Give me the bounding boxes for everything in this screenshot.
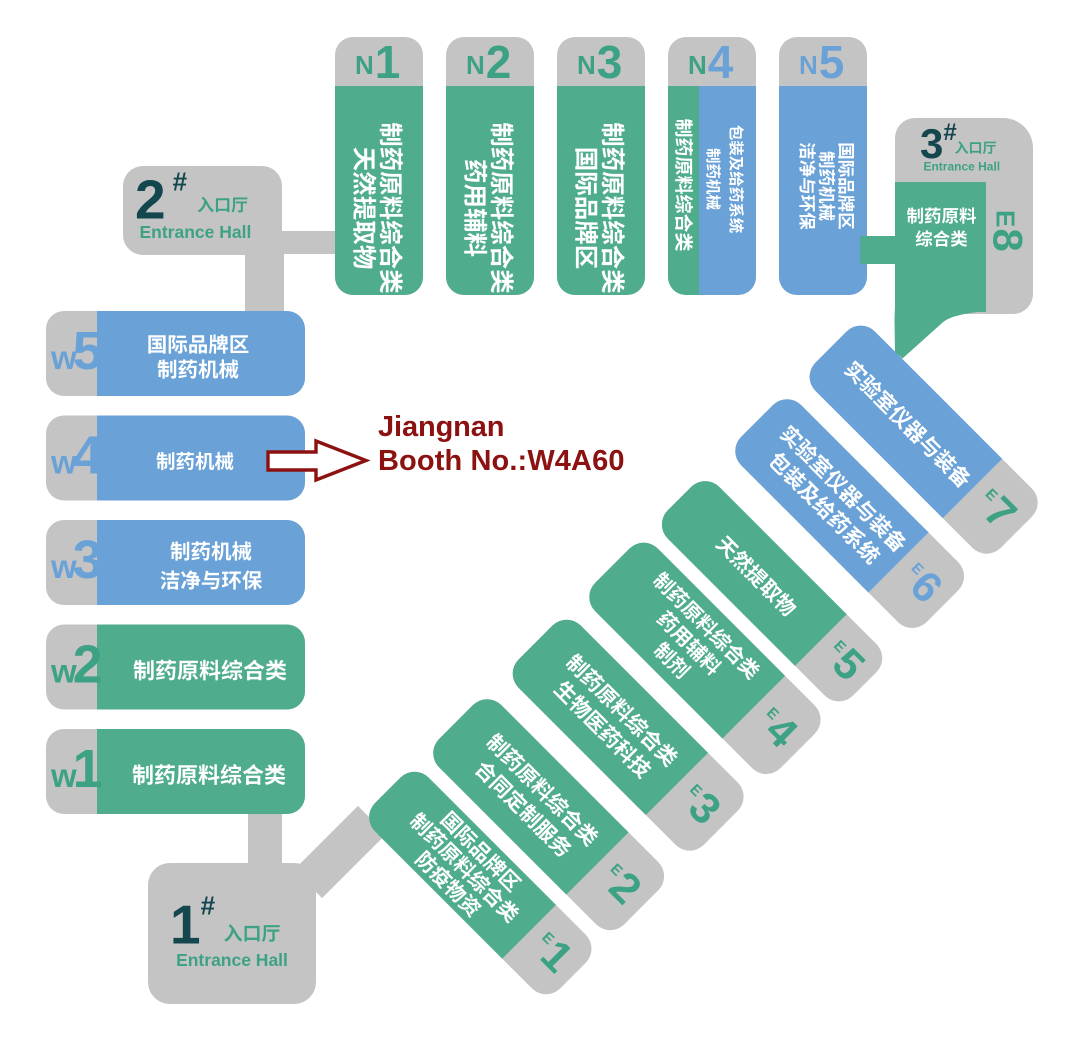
svg-text:Jiangnan: Jiangnan: [378, 411, 505, 443]
svg-text:Entrance Hall: Entrance Hall: [139, 222, 251, 242]
svg-text:Entrance Hall: Entrance Hall: [923, 160, 1000, 174]
svg-text:Booth No.:W4A60: Booth No.:W4A60: [378, 445, 625, 477]
svg-text:Entrance Hall: Entrance Hall: [176, 950, 288, 970]
